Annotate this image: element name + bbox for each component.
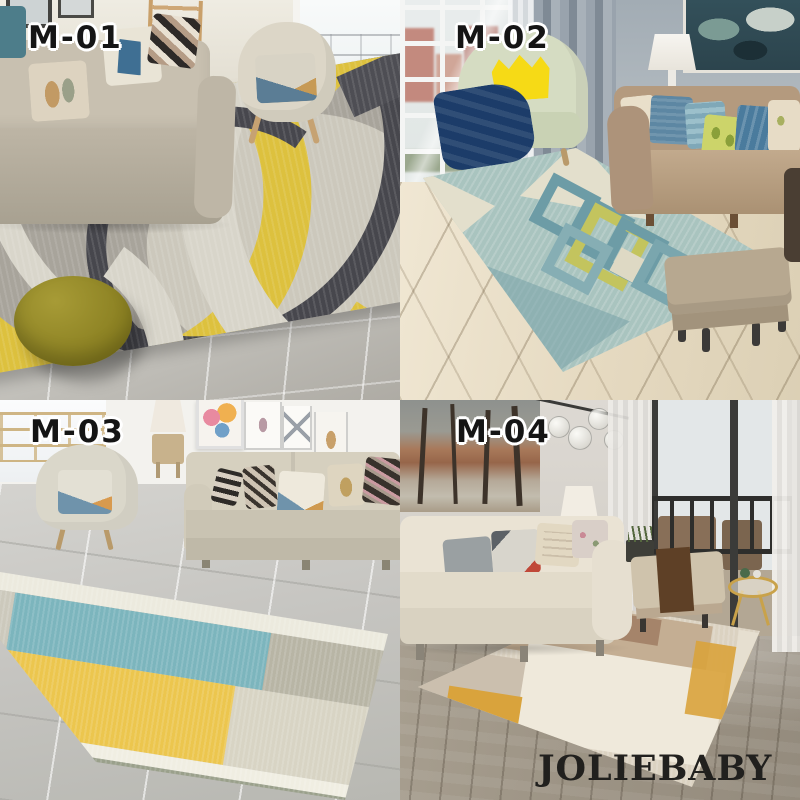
stool-leg [156, 462, 160, 478]
pillow-cream-floral [768, 100, 800, 152]
sofa-leg [302, 560, 310, 570]
product-tile-m04: JOLIEBABY M-04 [400, 400, 800, 800]
round-pouf [14, 276, 132, 366]
wall-painting [683, 0, 800, 73]
sofa-armrest [194, 75, 237, 218]
product-tile-m01: M-01 [0, 0, 400, 400]
gallery-frame-deer [244, 402, 282, 450]
stool-leg [176, 462, 180, 478]
ottoman-leg [752, 322, 760, 346]
pendant-light-globe [588, 408, 610, 430]
pendant-light-globe [568, 426, 592, 450]
picture-frame [58, 0, 94, 18]
sofa-armrest [606, 105, 653, 211]
sofa-seat [0, 128, 224, 224]
sofa-base [186, 538, 400, 560]
product-image-collage[interactable]: M-01 [0, 0, 800, 800]
pillow-patchwork [491, 529, 541, 575]
pillow-striped [362, 456, 400, 506]
pillow-striped [242, 464, 278, 509]
product-tile-m03: M-03 [0, 400, 400, 800]
pillow-leaf [28, 60, 90, 122]
plant-sprigs [628, 526, 652, 542]
variant-label-m04: M-04 [456, 414, 551, 450]
gallery-frame-letter [282, 406, 312, 450]
pendant-light-globe [548, 416, 570, 438]
variant-label-m01: M-01 [28, 20, 123, 56]
sofa-leg [520, 646, 528, 662]
sheer-curtain [772, 400, 800, 652]
brand-watermark: JOLIEBABY [538, 748, 772, 789]
gallery-frame-abstract [196, 400, 244, 449]
sofa-base [400, 608, 616, 644]
ottoman-leg [702, 612, 708, 628]
table-cup [753, 570, 761, 578]
ottoman-runner [656, 547, 694, 613]
sofa-leg [646, 212, 654, 226]
sofa-leg [382, 560, 390, 570]
sofa-leg [730, 214, 738, 228]
ottoman [664, 247, 793, 316]
sofa-leg [596, 640, 604, 656]
painting-tree [417, 408, 427, 504]
variant-label-m02: M-02 [455, 20, 550, 56]
pillow-triangles [255, 52, 317, 103]
gold-side-table [728, 576, 778, 598]
pillow-striped [147, 13, 201, 69]
product-tile-m02: M-02 [400, 0, 800, 400]
table-plant [740, 568, 750, 578]
pillow-leaf [327, 463, 365, 507]
floor-lamp-shade [150, 400, 186, 432]
table-lamp-shade [648, 34, 696, 70]
floor-lamp-shade [560, 486, 598, 520]
pillow-triangles [58, 470, 112, 514]
variant-label-m03: M-03 [30, 414, 125, 450]
pillow [0, 6, 26, 58]
ottoman-leg [702, 328, 710, 352]
wooden-stool [152, 434, 184, 464]
sofa-leg [416, 644, 424, 660]
round-side-table [784, 168, 800, 262]
